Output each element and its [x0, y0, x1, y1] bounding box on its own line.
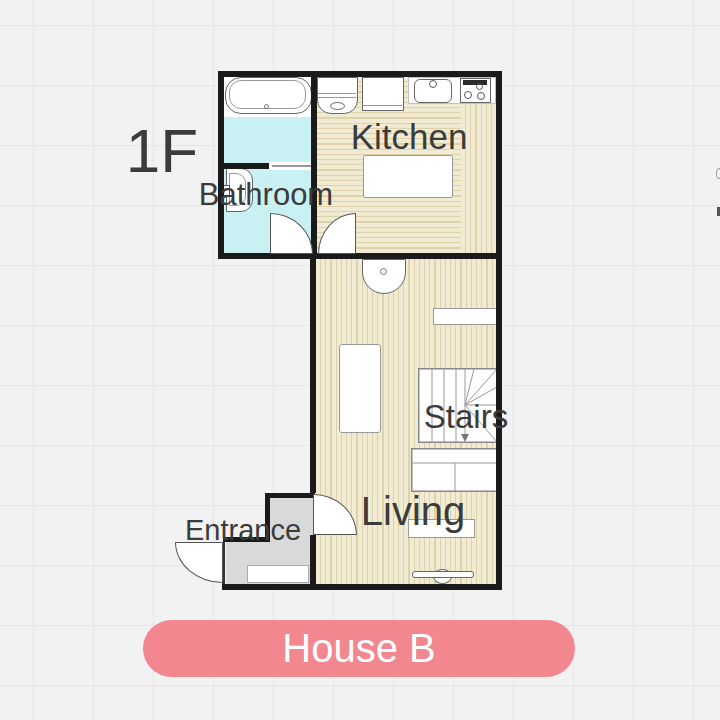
washing-machine-line	[318, 93, 356, 94]
floor-plan-viewer: { "floor_plan": { "floor_label": "1F", "…	[0, 0, 720, 720]
stove-burner-3	[476, 83, 483, 90]
washing-machine-line2	[318, 97, 356, 98]
room-label-bathroom: Bathroom	[199, 179, 333, 210]
genkan-step	[247, 565, 309, 583]
shelf	[433, 308, 497, 325]
washing-machine	[317, 77, 358, 114]
tv-screen	[412, 571, 474, 578]
refrigerator	[362, 77, 404, 111]
room-label-entrance: Entrance	[185, 516, 301, 545]
kitchen-table	[363, 155, 453, 198]
sofa	[411, 448, 498, 492]
stove	[460, 78, 491, 103]
sliding-door-track	[272, 165, 311, 167]
wall-living-left-upper	[310, 259, 316, 493]
stove-burner-1	[464, 91, 472, 99]
wall-middle	[218, 253, 502, 259]
stove-grill	[463, 80, 487, 85]
wall-bottom	[222, 584, 502, 590]
wash-basin-drain	[380, 268, 387, 275]
wall-entrance-top	[265, 493, 315, 498]
bathtub	[225, 77, 312, 114]
floor-label: 1F	[126, 120, 198, 182]
room-label-kitchen: Kitchen	[351, 119, 468, 154]
house-b-button-label: House B	[282, 626, 435, 671]
kitchen-sink-faucet	[429, 80, 437, 88]
wall-bathroom-kitchen-divider	[311, 71, 317, 259]
wall-right	[496, 71, 502, 590]
edge-artifact-1	[716, 168, 720, 179]
entrance-door-swing	[175, 542, 223, 583]
bathtub-drain	[264, 104, 269, 109]
refrigerator-line	[363, 105, 402, 106]
wall-bathroom-partition	[218, 163, 269, 169]
low-table	[339, 344, 381, 433]
wall-living-left-lower	[310, 535, 316, 590]
kitchen-sink	[414, 79, 452, 103]
sliding-door	[269, 162, 311, 170]
house-b-button[interactable]: House B	[143, 620, 575, 677]
room-label-living: Living	[361, 491, 466, 531]
washing-machine-port	[330, 102, 345, 110]
stove-burner-2	[477, 92, 485, 100]
room-label-stairs: Stairs	[424, 400, 508, 433]
wall-top	[218, 71, 502, 77]
